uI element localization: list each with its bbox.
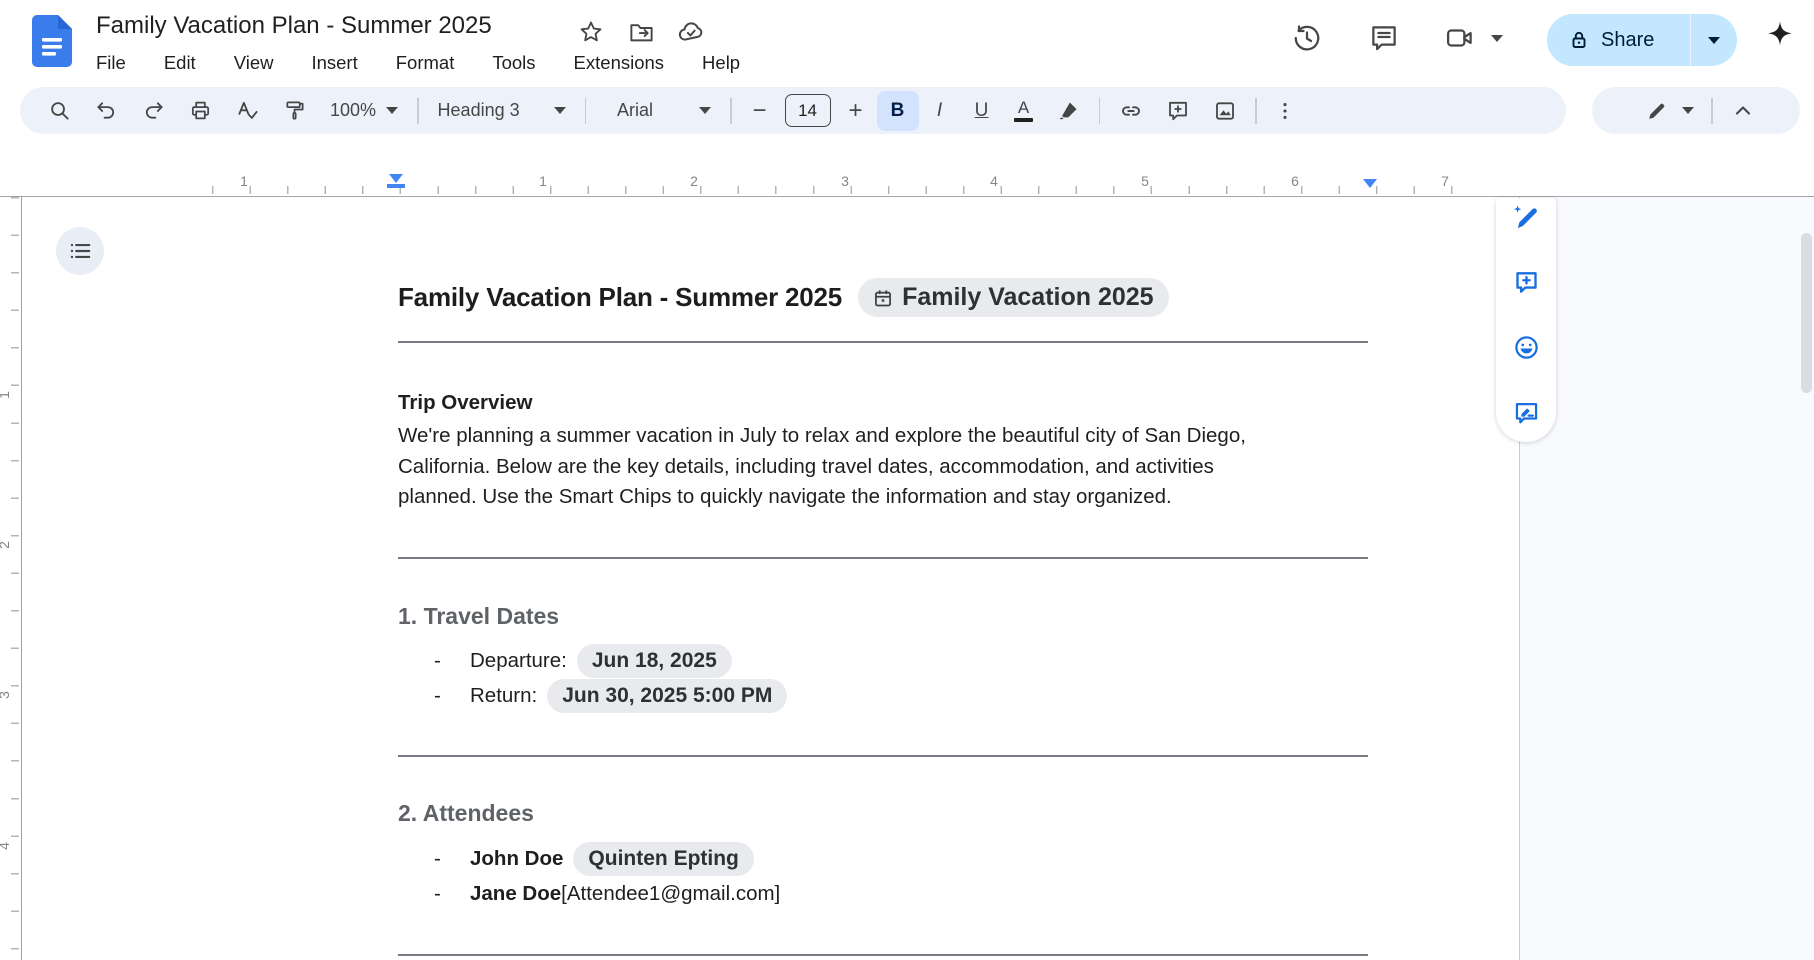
- style-value: Heading 3: [438, 100, 520, 121]
- toolbar-separator: [1099, 98, 1101, 124]
- bullet-dash: -: [434, 847, 470, 871]
- zoom-dropdown-icon: [386, 107, 398, 114]
- canvas-margin-area: [1519, 197, 1814, 960]
- cloud-saved-icon[interactable]: [676, 17, 706, 47]
- mode-toolbar: [1592, 87, 1800, 134]
- ruler-number: 3: [0, 691, 12, 699]
- ruler-number: 1: [539, 173, 547, 189]
- menu-bar: File Edit View Insert Format Tools Exten…: [92, 50, 744, 76]
- menu-format[interactable]: Format: [392, 50, 459, 76]
- ruler-number: 1: [0, 391, 12, 399]
- meet-dropdown-icon[interactable]: [1482, 16, 1512, 60]
- overview-paragraph: We're planning a summer vacation in July…: [398, 421, 1246, 513]
- paragraph-line: California. Below are the key details, i…: [398, 452, 1246, 483]
- zoom-select[interactable]: 100%: [318, 91, 410, 131]
- underline-button[interactable]: U: [961, 91, 1003, 131]
- list-item: - John Doe Quinten Epting: [434, 840, 754, 877]
- calendar-icon: [873, 288, 893, 308]
- list-item: - Return: Jun 30, 2025 5:00 PM: [434, 677, 787, 714]
- editing-mode-select[interactable]: [1636, 91, 1704, 131]
- pencil-edit-icon: [1646, 100, 1668, 122]
- font-dropdown-icon: [699, 107, 711, 114]
- outline-list-icon: [67, 238, 93, 264]
- increase-font-size-button[interactable]: +: [835, 91, 877, 131]
- date-chip[interactable]: Jun 18, 2025: [577, 644, 732, 678]
- meet-video-icon[interactable]: [1438, 16, 1482, 60]
- bullet-dash: -: [434, 684, 470, 708]
- redo-icon[interactable]: [130, 91, 177, 131]
- right-indent-marker[interactable]: [1363, 179, 1377, 188]
- move-folder-icon[interactable]: [626, 17, 656, 47]
- insert-link-icon[interactable]: [1107, 91, 1154, 131]
- docs-logo-icon[interactable]: [32, 15, 72, 67]
- comments-icon[interactable]: [1362, 16, 1406, 60]
- toolbar-separator: [1255, 98, 1257, 124]
- highlight-color-icon[interactable]: [1045, 91, 1092, 131]
- item-label: Departure:: [470, 649, 567, 673]
- bold-button[interactable]: B: [877, 91, 919, 131]
- ruler-number: 7: [1441, 173, 1449, 189]
- decrease-font-size-button[interactable]: −: [739, 91, 781, 131]
- hide-menus-icon[interactable]: [1720, 91, 1767, 131]
- mode-dropdown-icon: [1682, 107, 1694, 114]
- bullet-dash: -: [434, 649, 470, 673]
- share-main[interactable]: Share: [1547, 14, 1691, 66]
- print-icon[interactable]: [177, 91, 224, 131]
- style-dropdown-icon: [554, 107, 566, 114]
- left-indent-marker[interactable]: [389, 174, 403, 183]
- menu-help[interactable]: Help: [698, 50, 744, 76]
- ruler-number: 2: [0, 541, 12, 549]
- version-history-icon[interactable]: [1285, 16, 1329, 60]
- attendee-name: Jane Doe: [470, 882, 561, 906]
- menu-insert[interactable]: Insert: [307, 50, 361, 76]
- share-dropdown-icon[interactable]: [1691, 14, 1737, 66]
- ruler-number: 4: [0, 842, 12, 850]
- document-title[interactable]: Family Vacation Plan - Summer 2025: [96, 12, 492, 40]
- lock-icon: [1567, 28, 1591, 52]
- menu-file[interactable]: File: [92, 50, 130, 76]
- horizontal-rule: [398, 954, 1368, 956]
- emoji-reaction-icon[interactable]: [1512, 333, 1540, 361]
- toolbar-separator: [1711, 98, 1713, 124]
- suggest-edits-icon[interactable]: [1512, 398, 1540, 426]
- horizontal-ruler[interactable]: 1 1 2 3 4 5 6 7: [0, 171, 1814, 197]
- ruler-number: 6: [1291, 173, 1299, 189]
- list-item: - Departure: Jun 18, 2025: [434, 642, 732, 679]
- font-size-input[interactable]: 14: [785, 94, 831, 127]
- attendees-heading: 2. Attendees: [398, 800, 534, 827]
- attendee-name: John Doe: [470, 847, 563, 871]
- horizontal-rule: [398, 557, 1368, 559]
- italic-button[interactable]: I: [919, 91, 961, 131]
- menu-edit[interactable]: Edit: [160, 50, 200, 76]
- insert-image-icon[interactable]: [1201, 91, 1248, 131]
- person-chip[interactable]: Quinten Epting: [573, 842, 753, 876]
- star-icon[interactable]: [576, 17, 606, 47]
- text-color-button[interactable]: A: [1003, 91, 1045, 131]
- overview-heading: Trip Overview: [398, 391, 532, 415]
- paragraph-style-select[interactable]: Heading 3: [426, 91, 578, 131]
- paragraph-line: We're planning a summer vacation in July…: [398, 421, 1246, 452]
- main-toolbar: 100% Heading 3 Arial − 14 + B I U A: [20, 87, 1566, 134]
- horizontal-rule: [398, 341, 1368, 343]
- attendee-email: [Attendee1@gmail.com]: [561, 882, 780, 906]
- help-me-write-icon[interactable]: [1512, 203, 1540, 231]
- undo-icon[interactable]: [83, 91, 130, 131]
- font-family-select[interactable]: Arial: [593, 91, 723, 131]
- font-value: Arial: [617, 100, 653, 121]
- paragraph-line: planned. Use the Smart Chips to quickly …: [398, 482, 1246, 513]
- search-menus-icon[interactable]: [36, 91, 83, 131]
- ruler-number: 4: [990, 173, 998, 189]
- ruler-number: 1: [240, 173, 248, 189]
- zoom-value: 100%: [330, 100, 376, 121]
- share-label: Share: [1601, 29, 1654, 52]
- menu-tools[interactable]: Tools: [488, 50, 539, 76]
- list-item: - Jane Doe [Attendee1@gmail.com]: [434, 875, 780, 912]
- horizontal-rule: [398, 755, 1368, 757]
- date-chip[interactable]: Jun 30, 2025 5:00 PM: [547, 679, 787, 713]
- more-options-icon[interactable]: [1264, 91, 1306, 131]
- bullet-dash: -: [434, 882, 470, 906]
- toolbar-separator: [730, 98, 732, 124]
- doc-title-line: Family Vacation Plan - Summer 2025 Famil…: [398, 278, 1169, 317]
- toolbar-separator: [417, 98, 419, 124]
- paint-format-icon[interactable]: [271, 91, 318, 131]
- ruler-ticks: [11, 197, 19, 960]
- ruler-number: 2: [690, 173, 698, 189]
- menu-view[interactable]: View: [230, 50, 278, 76]
- google-docs-window: Family Vacation Plan - Summer 2025 File …: [0, 0, 1814, 960]
- vertical-ruler[interactable]: 1 2 3 4: [0, 197, 22, 960]
- menu-extensions[interactable]: Extensions: [570, 50, 669, 76]
- ruler-number: 5: [1141, 173, 1149, 189]
- ruler-number: 3: [841, 173, 849, 189]
- vertical-scrollbar[interactable]: [1801, 233, 1812, 393]
- left-margin-marker[interactable]: [387, 184, 405, 188]
- calendar-event-chip[interactable]: Family Vacation 2025: [858, 278, 1169, 317]
- share-button[interactable]: Share: [1547, 14, 1737, 66]
- gemini-sparkle-icon[interactable]: [1758, 14, 1802, 58]
- toolbar-separator: [585, 98, 587, 124]
- spelling-check-icon[interactable]: [224, 91, 271, 131]
- add-comment-rail-icon[interactable]: [1512, 268, 1540, 296]
- travel-dates-heading: 1. Travel Dates: [398, 603, 559, 630]
- item-label: Return:: [470, 684, 537, 708]
- doc-title-text: Family Vacation Plan - Summer 2025: [398, 282, 842, 313]
- add-comment-icon[interactable]: [1154, 91, 1201, 131]
- show-outline-button[interactable]: [56, 227, 104, 275]
- quick-actions-rail: [1496, 198, 1556, 442]
- calendar-chip-label: Family Vacation 2025: [902, 283, 1154, 312]
